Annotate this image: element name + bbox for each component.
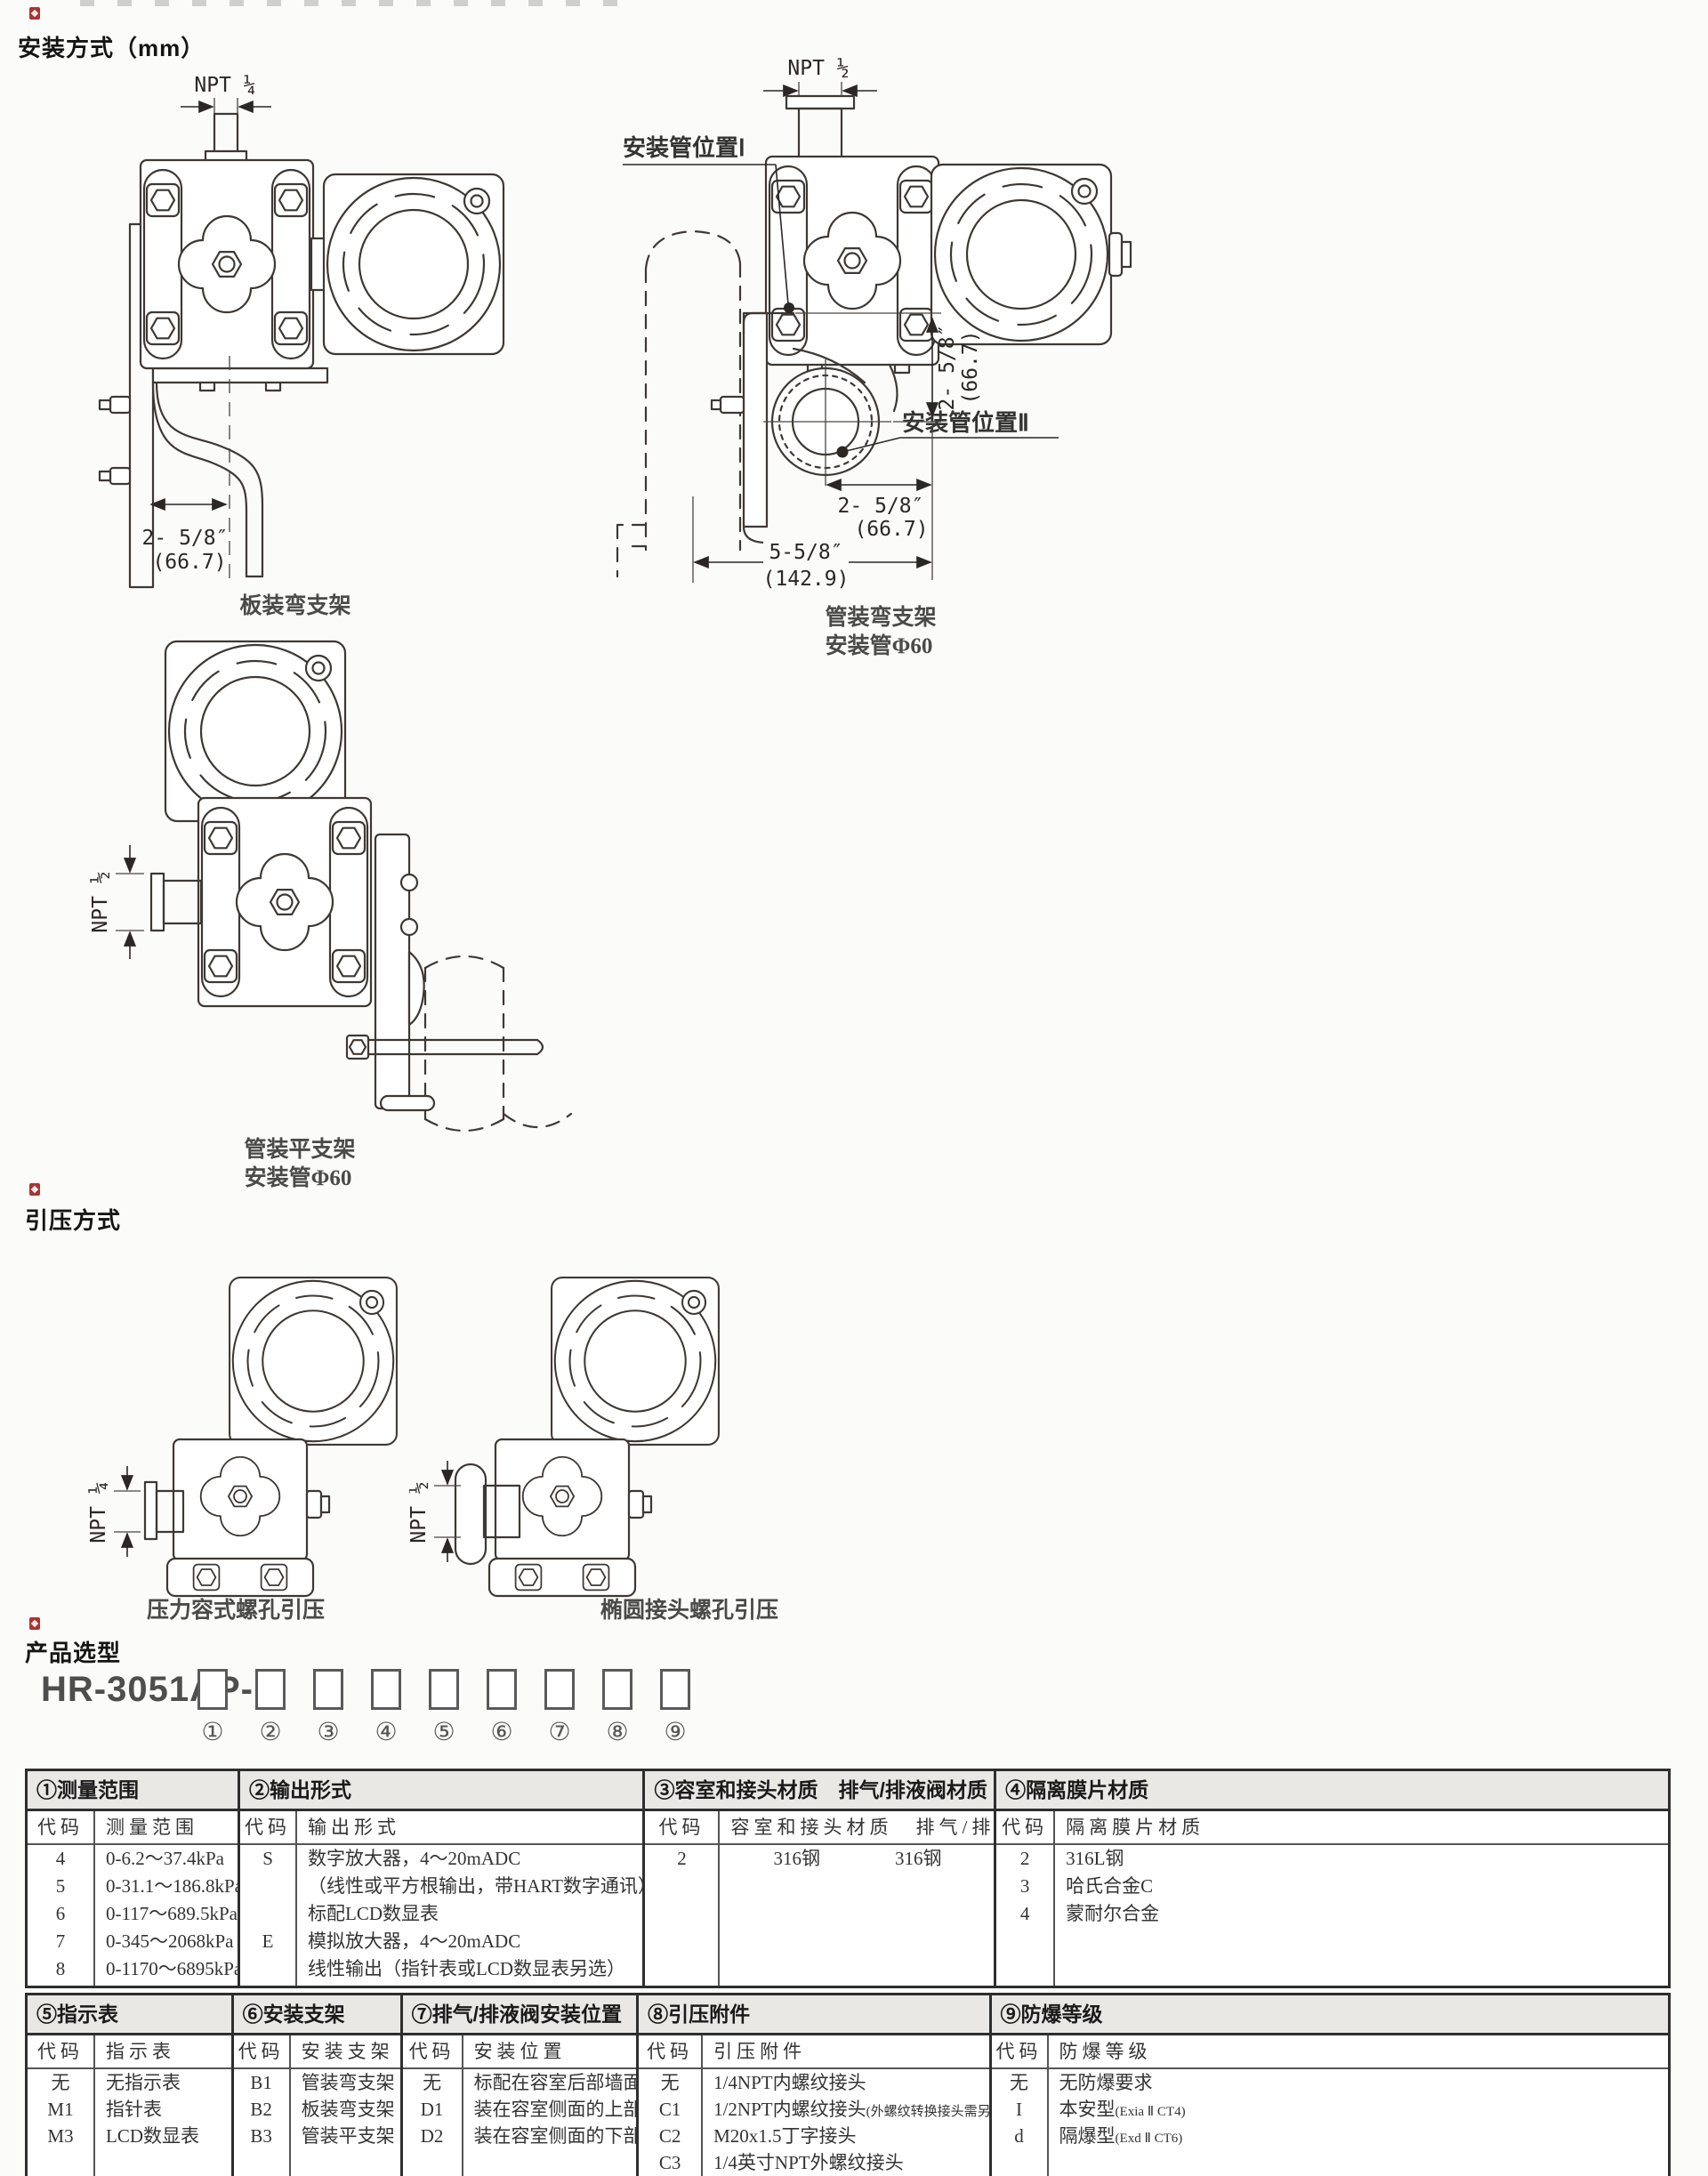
value-cell: 线性输出（指针表或LCD数显表另选） <box>297 1955 642 1983</box>
drawing-caption: 安装管Φ60 <box>245 1165 352 1190</box>
value-cell: 316L钢 <box>1055 1845 1668 1873</box>
code-cell: d <box>992 2123 1047 2149</box>
npt-label: NPT ¼ <box>194 74 255 97</box>
drawing-caption: 压力容式螺孔引压 <box>147 1597 325 1623</box>
column-chamber-material: ③容室和接头材质 排气/排液阀材质 代码 2 容室和接头材质 排气/排液阀材质 … <box>642 1771 994 1986</box>
dim-label: 2- 5/8″ <box>936 325 959 411</box>
model-code-box-8 <box>602 1669 632 1710</box>
code-cell: I <box>992 2096 1047 2123</box>
value-cell: 板装弯支架 <box>291 2096 400 2123</box>
value-cell: M20x1.5丁字接头 <box>703 2123 988 2149</box>
value-cell: 模拟放大器，4～20mADC <box>297 1928 642 1955</box>
code-cell: 无 <box>403 2069 462 2096</box>
model-code-box-6 <box>487 1669 517 1710</box>
column-explosion-rating: ⑨防爆等级 代码 无 I d 防爆等级 无防爆要求 本安型(Exia Ⅱ CT4… <box>989 1995 1668 2176</box>
code-cell <box>240 1955 295 1983</box>
code-cell: B1 <box>234 2069 289 2096</box>
section-bullet-icon <box>29 1183 40 1196</box>
code-cell: C1 <box>639 2096 701 2123</box>
position-number: ① <box>197 1717 228 1747</box>
position-number: ⑥ <box>487 1717 517 1747</box>
drawing-caption: 安装管Φ60 <box>826 633 933 658</box>
code-cell: C2 <box>639 2123 701 2149</box>
code-cell: D2 <box>403 2123 462 2149</box>
value-cell: 0-117～689.5kPa <box>95 1900 238 1928</box>
model-code-box-3 <box>313 1669 343 1710</box>
value-cell: 隔爆型(Exd Ⅱ CT6) <box>1049 2123 1668 2149</box>
position-number: ⑨ <box>660 1717 690 1747</box>
value-cell: 无防爆要求 <box>1049 2069 1668 2096</box>
code-cell: 7 <box>28 1928 93 1955</box>
code-cell: M3 <box>28 2123 93 2149</box>
value-cell: LCD数显表 <box>95 2123 231 2149</box>
model-code-box-5 <box>429 1669 459 1710</box>
model-code-box-4 <box>371 1669 401 1710</box>
model-code-box-1 <box>197 1669 228 1710</box>
column-title: ②输出形式 <box>240 1771 642 1811</box>
value-cell: （线性或平方根输出，带HART数字通讯） <box>297 1873 642 1900</box>
model-code-box-9 <box>660 1669 690 1710</box>
column-pressure-accessory: ⑧引压附件 代码 无 C1 C2 C3 引压附件 1/4NPT内螺纹接头 1/2… <box>636 1995 988 2176</box>
drawing-caption: 椭圆接头螺孔引压 <box>600 1597 778 1623</box>
npt-label: NPT ½ <box>409 1481 431 1543</box>
dim-label: 2- 5/8″ <box>838 495 924 518</box>
column-measure-range: ①测量范围 代码 4 5 6 7 8 测量范围 0-6.2～37.4kPa 0-… <box>28 1771 238 1986</box>
code-cell <box>240 1900 295 1928</box>
column-valve-position: ⑦排气/排液阀安装位置 代码 无 D1 D2 安装位置 标配在容室后部墙面 装在… <box>400 1995 637 2176</box>
drawing-pipe-flat-bracket: NPT ½ 管装平支架 安装管Φ60 <box>76 618 592 1197</box>
value-cell: 本安型(Exia Ⅱ CT4) <box>1049 2096 1668 2123</box>
position-number: ⑧ <box>602 1717 632 1747</box>
position-number: ⑦ <box>544 1717 575 1747</box>
value-cell: 0-6.2～37.4kPa <box>95 1845 238 1873</box>
code-cell <box>240 1873 295 1900</box>
value-cell: 装在容室侧面的上部 <box>463 2096 637 2123</box>
selection-table-1: ①测量范围 代码 4 5 6 7 8 测量范围 0-6.2～37.4kPa 0-… <box>25 1769 1671 1988</box>
drawing-oval-adapter-screw-hole: NPT ½ 椭圆接头螺孔引压 <box>409 1228 890 1624</box>
code-cell: C3 <box>639 2149 701 2176</box>
drawing-caption: 管装平支架 <box>244 1136 355 1162</box>
code-cell: 6 <box>28 1900 93 1928</box>
value-cell: 指针表 <box>95 2096 231 2123</box>
code-cell: B3 <box>234 2123 289 2149</box>
drawing-panel-bent-bracket: NPT ¼ 2- 5/8″ (66.7) 板装弯支架 <box>71 62 534 632</box>
wall-bolt <box>100 397 130 484</box>
value-cell: 1/4NPT内螺纹接头 <box>703 2069 988 2096</box>
code-cell: M1 <box>28 2096 93 2123</box>
dim-label: 5-5/8″ <box>769 541 842 564</box>
selection-tables: ①测量范围 代码 4 5 6 7 8 测量范围 0-6.2～37.4kPa 0-… <box>25 1769 1671 2176</box>
column-title: ④隔离膜片材质 <box>996 1771 1668 1811</box>
model-code-box-7 <box>544 1669 575 1710</box>
position-number: ⑤ <box>429 1717 459 1747</box>
value-cell: 0-345～2068kPa <box>95 1928 238 1955</box>
code-cell: S <box>240 1845 295 1873</box>
npt-label: NPT ½ <box>89 871 112 932</box>
value-cell: 0-1170～6895kPa <box>95 1955 238 1983</box>
column-bracket: ⑥安装支架 代码 B1 B2 B3 安装支架 管装弯支架 板装弯支架 管装平支架 <box>231 1995 400 2176</box>
dim-label: (142.9) <box>763 568 850 591</box>
value-cell: 装在容室侧面的下部 <box>463 2123 637 2149</box>
column-title: ③容室和接头材质 排气/排液阀材质 <box>645 1771 994 1811</box>
drawing-caption: 管装弯支架 <box>825 604 936 630</box>
position-number: ④ <box>371 1717 401 1747</box>
value-cell: 1/2NPT内螺纹接头(外螺纹转换接头需另买) <box>703 2096 988 2123</box>
value-cell: 蒙耐尔合金 <box>1055 1900 1668 1928</box>
dim-label: (66.7) <box>959 330 982 404</box>
code-cell: 5 <box>28 1873 93 1900</box>
value-cell: 无指示表 <box>95 2069 231 2096</box>
column-title: ⑥安装支架 <box>234 1995 400 2035</box>
section-bullet-icon <box>29 7 40 20</box>
value-cell: 1/4英寸NPT外螺纹接头 <box>703 2149 988 2176</box>
code-cell: 3 <box>996 1873 1053 1900</box>
column-title: ⑨防爆等级 <box>992 1995 1668 2035</box>
code-cell: 4 <box>28 1845 93 1873</box>
column-indicator: ⑤指示表 代码 无 M1 M3 指示表 无指示表 指针表 LCD数显表 <box>28 1995 231 2176</box>
code-cell: 无 <box>992 2069 1047 2096</box>
value-cell: 数字放大器，4～20mADC <box>297 1845 642 1873</box>
column-title: ⑦排气/排液阀安装位置 <box>403 1995 637 2035</box>
drawing-caption: 板装弯支架 <box>239 592 350 618</box>
code-cell: 2 <box>645 1845 718 1873</box>
page-top-remnant <box>80 0 632 6</box>
npt-label: NPT ¼ <box>87 1481 110 1543</box>
column-output-type: ②输出形式 代码 S E 输出形式 数字放大器，4～20mADC （线性或平方根… <box>238 1771 642 1986</box>
column-title: ①测量范围 <box>28 1771 238 1811</box>
dim-label: 2- 5/8″ <box>142 527 229 550</box>
section-bullet-icon <box>29 1617 40 1630</box>
section-title-mounting: 安装方式（mm） <box>18 30 205 63</box>
value-cell: 0-31.1～186.8kPa <box>95 1873 238 1900</box>
code-cell: B2 <box>234 2096 289 2123</box>
section-title-selection: 产品选型 <box>25 1635 121 1668</box>
code-cell: 8 <box>28 1955 93 1983</box>
value-cell: 标配在容室后部墙面 <box>463 2069 637 2096</box>
dim-label: (66.7) <box>152 551 226 574</box>
position-number: ③ <box>313 1717 343 1747</box>
code-cell: E <box>240 1928 295 1955</box>
pipe-position-1-label: 安装管位置Ⅰ <box>623 134 745 161</box>
code-cell: D1 <box>403 2096 462 2123</box>
value-cell: 316钢 316钢 <box>720 1845 994 1873</box>
value-cell: 管装弯支架 <box>291 2069 400 2096</box>
code-cell: 无 <box>639 2069 701 2096</box>
model-code-boxes: ① ② ③ ④ ⑤ ⑥ ⑦ ⑧ ⑨ <box>197 1669 718 1747</box>
pipe-position-2-label: 安装管位置Ⅱ <box>902 409 1029 436</box>
drawing-pipe-bent-bracket: NPT ½ 安装管位置Ⅰ <box>587 44 1210 676</box>
value-cell: 标配LCD数显表 <box>297 1900 642 1928</box>
position-number: ② <box>255 1717 286 1747</box>
code-cell: 无 <box>28 2069 93 2096</box>
selection-table-2: ⑤指示表 代码 无 M1 M3 指示表 无指示表 指针表 LCD数显表 <box>25 1993 1671 2176</box>
column-title: ⑤指示表 <box>28 1995 231 2035</box>
dim-label: (66.7) <box>854 518 928 541</box>
column-title: ⑧引压附件 <box>639 1995 988 2035</box>
code-cell: 4 <box>996 1900 1053 1928</box>
datasheet-page: 安装方式（mm） NPT ¼ 2- 5/8″ (66.7) 板装弯支架 NPT … <box>0 0 1708 2176</box>
value-cell: 管装平支架 <box>291 2123 400 2149</box>
model-code-box-2 <box>255 1669 286 1710</box>
npt-label: NPT ½ <box>787 57 849 80</box>
column-diaphragm-material: ④隔离膜片材质 代码 2 3 4 隔离膜片材质 316L钢 哈氏合金C 蒙耐尔合… <box>994 1771 1668 1986</box>
value-cell: 哈氏合金C <box>1055 1873 1668 1900</box>
code-cell: 2 <box>996 1845 1053 1873</box>
